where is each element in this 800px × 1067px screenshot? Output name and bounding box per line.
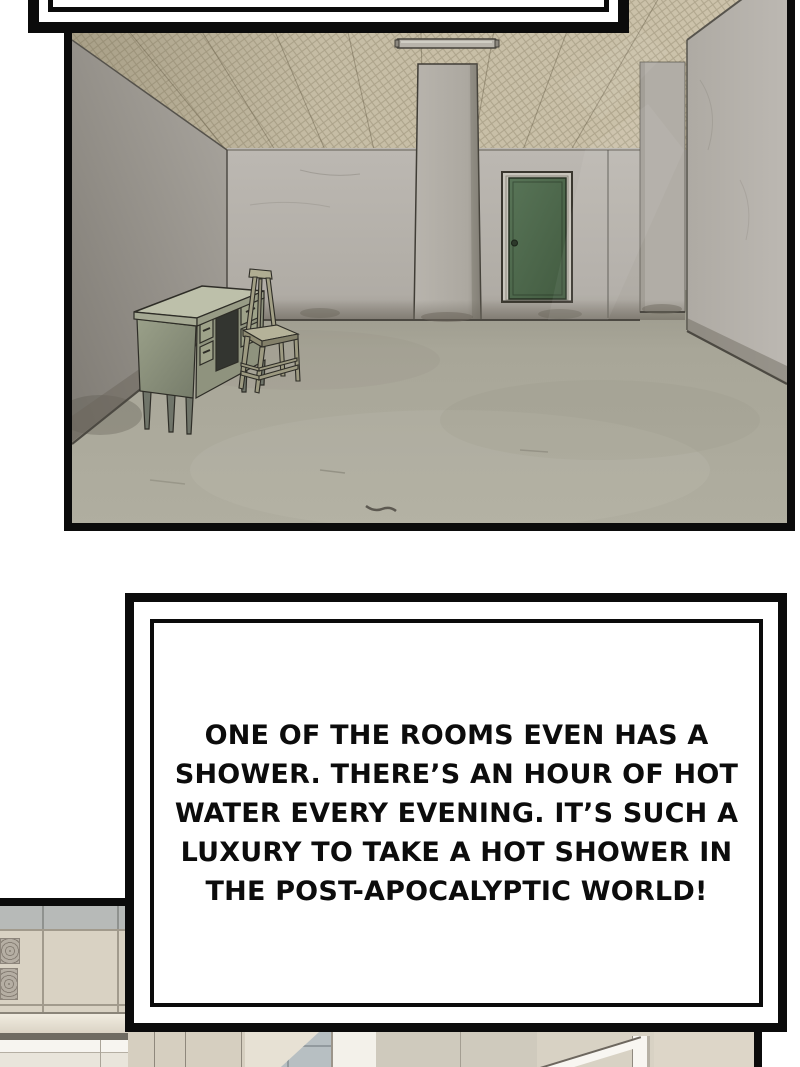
- bathroom-cabinet: [0, 1040, 132, 1067]
- previous-caption-box: [28, 0, 629, 33]
- decorative-tile: [0, 938, 20, 964]
- cabinet-top-strip: [0, 1040, 132, 1053]
- narration-line: SHOWER. THERE’S AN HOUR OF HOT: [154, 755, 759, 794]
- narration-line: THE POST-APOCALYPTIC WORLD!: [154, 872, 759, 911]
- narration-line: LUXURY TO TAKE A HOT SHOWER IN: [154, 833, 759, 872]
- decorative-tile: [0, 968, 18, 1000]
- center-pillar: [414, 64, 481, 320]
- panel-room: [64, 0, 795, 531]
- narration-caption-box: ONE OF THE ROOMS EVEN HAS A SHOWER. THER…: [125, 593, 787, 1032]
- comic-page: ONE OF THE ROOMS EVEN HAS A SHOWER. THER…: [0, 0, 800, 1067]
- bathroom-ledge-shadow: [0, 1033, 132, 1040]
- ceiling-light: [395, 39, 499, 48]
- narration-line: ONE OF THE ROOMS EVEN HAS A: [154, 716, 759, 755]
- right-wall: [687, 0, 787, 382]
- cabinet-seam: [100, 1040, 101, 1067]
- room-scene: [72, 0, 787, 523]
- door-knob: [512, 240, 518, 246]
- previous-caption-box-inner: [48, 0, 609, 12]
- bathroom-ledge: [0, 1012, 132, 1035]
- narration-caption-box-inner: ONE OF THE ROOMS EVEN HAS A SHOWER. THER…: [150, 619, 763, 1007]
- narration-text: ONE OF THE ROOMS EVEN HAS A SHOWER. THER…: [154, 716, 759, 911]
- narration-line: WATER EVERY EVENING. IT’S SUCH A: [154, 794, 759, 833]
- bathroom-tile-row-top: [0, 906, 128, 929]
- bathroom-frame-beam: [535, 1036, 643, 1067]
